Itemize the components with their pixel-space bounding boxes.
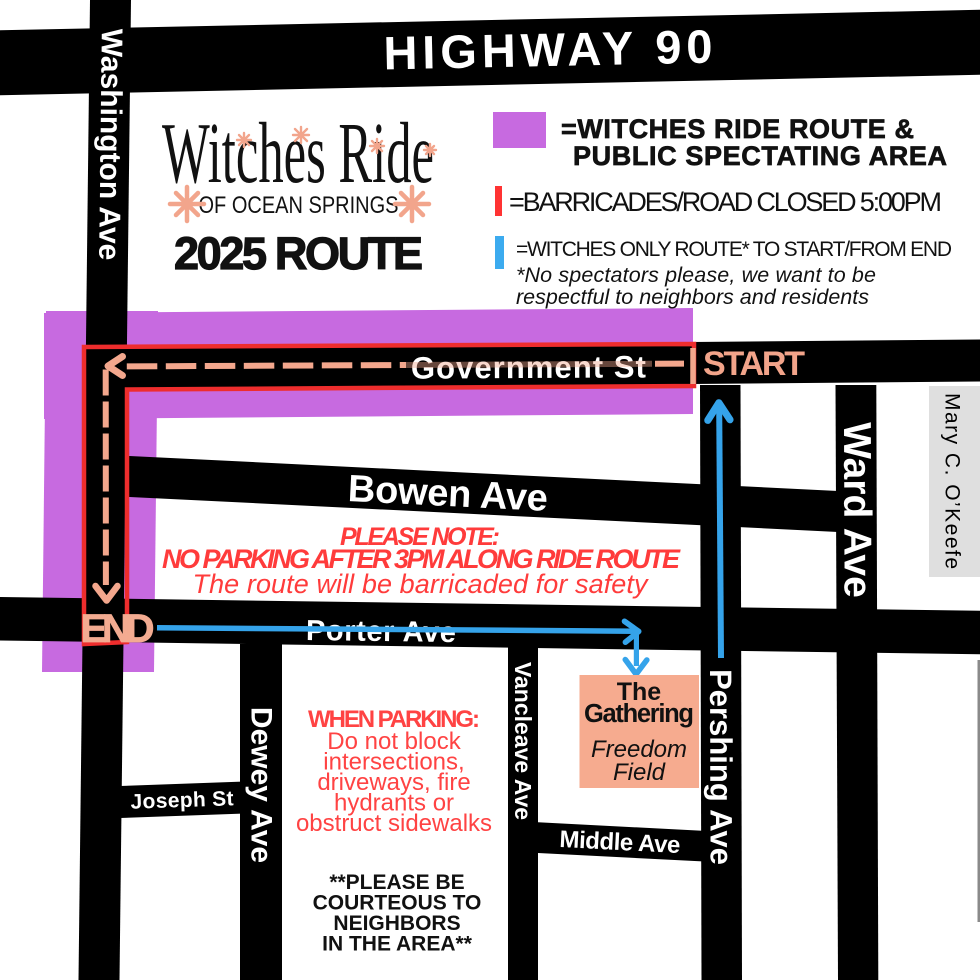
svg-text:Dewey Ave: Dewey Ave bbox=[245, 707, 278, 863]
svg-text:Joseph St: Joseph St bbox=[130, 787, 234, 814]
svg-text:=WITCHES ONLY ROUTE* TO START/: =WITCHES ONLY ROUTE* TO START/FROM END bbox=[516, 238, 952, 261]
svg-text:The route will be barricaded f: The route will be barricaded for safety bbox=[193, 569, 650, 599]
svg-text:Washington Ave: Washington Ave bbox=[92, 28, 128, 260]
svg-text:*No spectators please, we want: *No spectators please, we want to be bbox=[516, 263, 876, 287]
svg-text:Ward Ave: Ward Ave bbox=[835, 422, 879, 598]
svg-text:HIGHWAY 90: HIGHWAY 90 bbox=[383, 20, 713, 80]
svg-text:=WITCHES RIDE ROUTE &: =WITCHES RIDE ROUTE & bbox=[561, 114, 914, 144]
svg-text:Mary C. O’Keefe: Mary C. O’Keefe bbox=[941, 393, 964, 569]
svg-text:IN THE AREA**: IN THE AREA** bbox=[322, 933, 473, 956]
svg-text:respectful to neighbors and re: respectful to neighbors and residents bbox=[516, 285, 869, 309]
svg-text:Gathering: Gathering bbox=[584, 700, 694, 728]
svg-text:Pershing Ave: Pershing Ave bbox=[703, 669, 739, 865]
svg-text:OF OCEAN SPRINGS: OF OCEAN SPRINGS bbox=[199, 192, 399, 219]
svg-text:Vancleave Ave: Vancleave Ave bbox=[510, 662, 536, 820]
svg-text:PUBLIC SPECTATING AREA: PUBLIC SPECTATING AREA bbox=[573, 141, 947, 171]
svg-text:Witches Ride: Witches Ride bbox=[162, 106, 434, 202]
svg-text:START: START bbox=[703, 345, 805, 383]
svg-text:Bowen Ave: Bowen Ave bbox=[347, 468, 549, 520]
svg-text:END: END bbox=[81, 607, 155, 651]
svg-text:Field: Field bbox=[613, 759, 666, 786]
svg-text:=BARRICADES/ROAD CLOSED 5:00PM: =BARRICADES/ROAD CLOSED 5:00PM bbox=[509, 187, 942, 217]
svg-text:obstruct sidewalks: obstruct sidewalks bbox=[296, 810, 492, 837]
svg-text:2025 ROUTE: 2025 ROUTE bbox=[174, 228, 423, 279]
